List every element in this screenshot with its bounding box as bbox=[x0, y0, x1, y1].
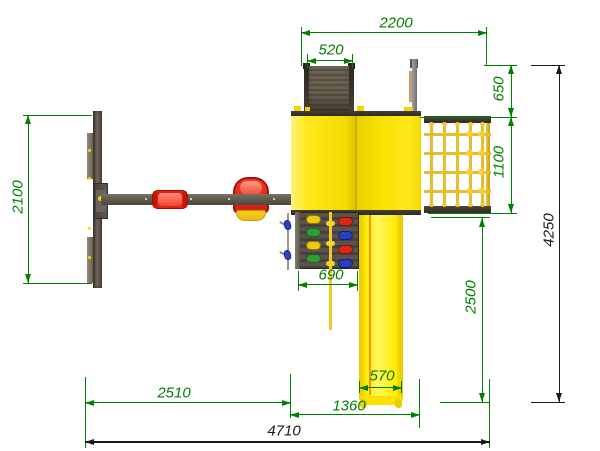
bolt-mark bbox=[88, 149, 91, 152]
dim-2100-label: 2100 bbox=[11, 180, 26, 213]
flag-pole-post bbox=[412, 59, 417, 113]
flag-pole-strip bbox=[409, 71, 412, 102]
net-knot-small bbox=[468, 122, 473, 126]
ext-line bbox=[428, 213, 517, 214]
flat-seat-highlight bbox=[158, 193, 182, 206]
net-knot bbox=[478, 169, 485, 175]
baby-seat-highlight bbox=[240, 181, 262, 195]
net-knot bbox=[478, 188, 485, 194]
net-bar-bottom bbox=[424, 206, 491, 213]
arrow bbox=[344, 58, 353, 64]
ramp-rail-right bbox=[349, 63, 354, 113]
dim-570-label: 570 bbox=[369, 369, 394, 384]
net-knot bbox=[466, 131, 473, 137]
bolt-mark bbox=[145, 198, 147, 200]
bolt-mark bbox=[228, 198, 230, 200]
platform-edge-top bbox=[291, 111, 421, 116]
dim-1100-label: 1100 bbox=[492, 146, 507, 178]
arrow bbox=[478, 30, 487, 36]
arrow bbox=[85, 439, 94, 445]
net-knot-small bbox=[468, 203, 473, 207]
dim-line bbox=[28, 115, 29, 283]
arrow bbox=[298, 282, 307, 288]
arrow bbox=[359, 385, 368, 391]
dim-4250-label: 4250 bbox=[542, 213, 557, 246]
drawing-canvas: 2200 520 650 1100 2100 bbox=[0, 0, 600, 451]
net-knot-small bbox=[455, 203, 460, 207]
ext-line bbox=[440, 402, 490, 403]
dim-650-label: 650 bbox=[492, 76, 507, 101]
slide-rail-right bbox=[397, 215, 403, 401]
bolt-mark bbox=[190, 198, 192, 200]
ext-line bbox=[85, 377, 86, 448]
arrow bbox=[479, 218, 485, 227]
arrow bbox=[393, 385, 402, 391]
arrow bbox=[556, 65, 562, 74]
dim-690-label: 690 bbox=[318, 268, 343, 283]
dim-line bbox=[482, 218, 483, 402]
bolt-mark bbox=[88, 177, 91, 180]
arrow bbox=[25, 274, 31, 283]
climb-hold-yellow bbox=[306, 241, 321, 250]
climb-rope-knot bbox=[326, 261, 335, 266]
net-knot bbox=[466, 150, 473, 156]
flat-seat-cap-right bbox=[183, 191, 187, 208]
climb-rope-knot bbox=[326, 221, 335, 226]
dim-4710-label: 4710 bbox=[267, 424, 300, 439]
slide-foot bbox=[395, 399, 402, 408]
dim-2500-label: 2500 bbox=[464, 280, 479, 313]
arrow bbox=[290, 412, 299, 418]
arrow bbox=[282, 400, 291, 406]
net-knot-small bbox=[442, 203, 447, 207]
ext-line bbox=[23, 115, 92, 116]
arrow bbox=[481, 439, 490, 445]
net-knot bbox=[466, 169, 473, 175]
climb-rope-knot bbox=[326, 241, 335, 246]
arrow bbox=[307, 58, 316, 64]
platform-seam bbox=[355, 116, 357, 210]
ext-line bbox=[357, 271, 358, 291]
dim-line bbox=[85, 441, 490, 443]
arrow bbox=[508, 117, 514, 126]
ext-line bbox=[23, 283, 92, 284]
dim-2510-label: 2510 bbox=[157, 386, 190, 401]
net-knot-small bbox=[480, 122, 485, 126]
net-knot-small bbox=[429, 203, 434, 207]
climb-hold-red bbox=[338, 245, 353, 254]
arrow bbox=[25, 115, 31, 124]
dim-520-label: 520 bbox=[318, 43, 343, 58]
climb-hold-red bbox=[338, 217, 353, 226]
slide-rail-left bbox=[359, 215, 365, 401]
platform-body-left bbox=[291, 116, 356, 210]
swing-beam-bar bbox=[101, 194, 293, 205]
arrow bbox=[508, 108, 514, 117]
arrow bbox=[556, 393, 562, 402]
ext-line bbox=[420, 117, 517, 118]
dim-line bbox=[559, 65, 560, 402]
arrow bbox=[349, 282, 358, 288]
ext-line bbox=[298, 271, 299, 291]
flat-seat-cap-left bbox=[153, 191, 157, 208]
climb-hold-green bbox=[306, 228, 321, 237]
arrow bbox=[479, 393, 485, 402]
arrow bbox=[411, 412, 420, 418]
arrow bbox=[508, 65, 514, 74]
net-knot bbox=[478, 131, 485, 137]
arrow bbox=[85, 400, 94, 406]
net-knot-small bbox=[442, 122, 447, 126]
net-knot-small bbox=[455, 122, 460, 126]
bolt-mark bbox=[88, 256, 91, 259]
arrow bbox=[301, 30, 310, 36]
dim-line bbox=[301, 32, 487, 33]
climb-hold-yellow bbox=[306, 215, 321, 224]
ext-line bbox=[419, 379, 420, 428]
dim-2200-label: 2200 bbox=[379, 16, 412, 31]
net-knot-small bbox=[429, 122, 434, 126]
ramp-surface bbox=[309, 66, 349, 113]
climb-hold-blue bbox=[338, 231, 353, 240]
ext-line-green bbox=[489, 379, 490, 448]
arrow bbox=[508, 204, 514, 213]
platform-body-right bbox=[356, 116, 421, 210]
ext-line bbox=[531, 402, 565, 403]
bolt-mark bbox=[273, 198, 275, 200]
net-knot bbox=[466, 188, 473, 194]
dim-line bbox=[511, 117, 512, 213]
net-knot bbox=[478, 150, 485, 156]
bolt-mark bbox=[88, 227, 91, 230]
baby-seat-bucket bbox=[236, 210, 266, 221]
dim-1360-label: 1360 bbox=[332, 399, 365, 414]
dim-line bbox=[85, 402, 291, 403]
net-knot-small bbox=[480, 203, 485, 207]
wall-left-rail bbox=[295, 212, 300, 269]
climb-hold-green bbox=[306, 254, 321, 263]
